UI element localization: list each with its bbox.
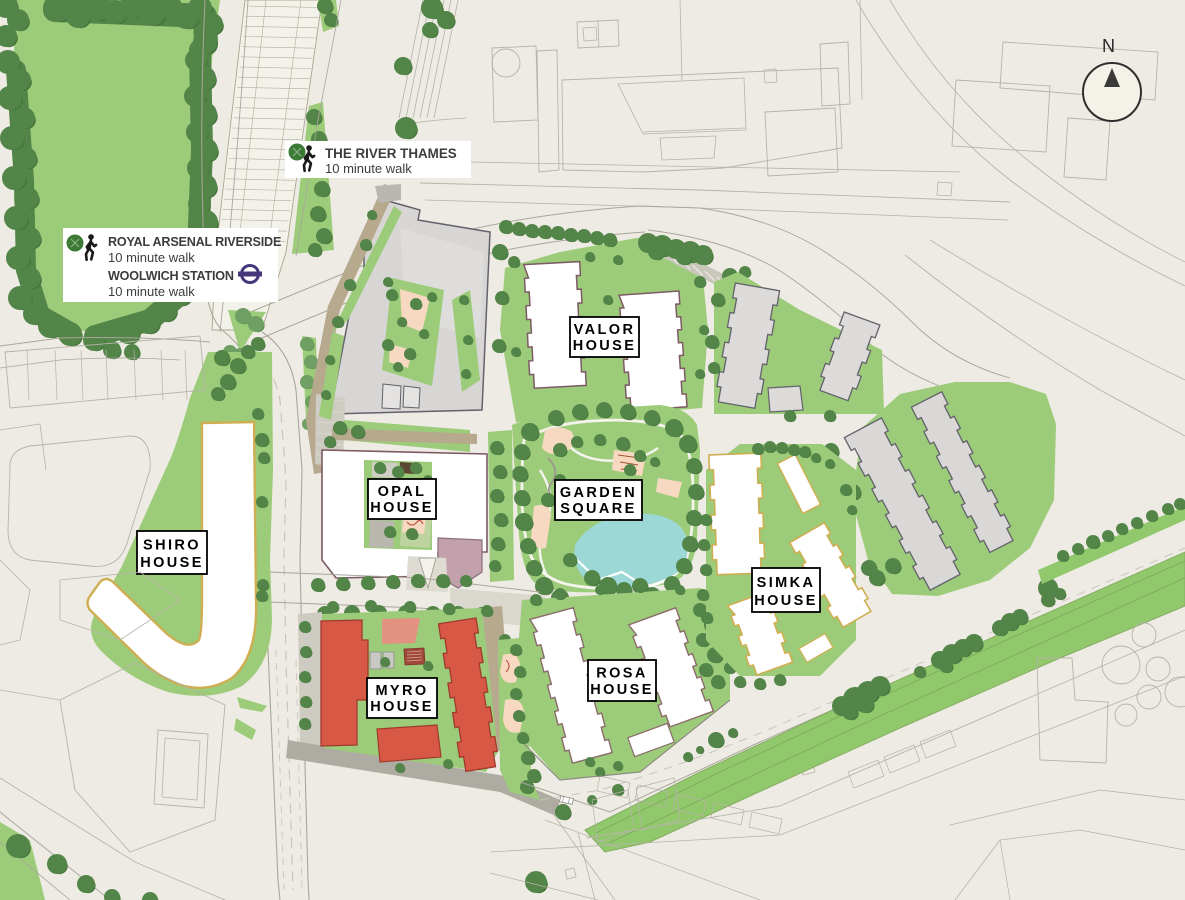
svg-text:N: N bbox=[1102, 36, 1115, 56]
svg-text:WOOLWICH STATION: WOOLWICH STATION bbox=[108, 269, 234, 283]
svg-text:ROSA: ROSA bbox=[596, 666, 648, 682]
svg-text:SIMKA: SIMKA bbox=[757, 575, 816, 591]
svg-text:ROYAL ARSENAL RIVERSIDE: ROYAL ARSENAL RIVERSIDE bbox=[108, 235, 281, 249]
svg-text:HOUSE: HOUSE bbox=[140, 555, 204, 571]
svg-text:10 minute walk: 10 minute walk bbox=[108, 250, 195, 265]
svg-text:HOUSE: HOUSE bbox=[370, 500, 434, 516]
svg-text:HOUSE: HOUSE bbox=[754, 593, 818, 609]
svg-text:OPAL: OPAL bbox=[378, 484, 427, 500]
svg-text:10 minute walk: 10 minute walk bbox=[325, 161, 412, 176]
svg-text:THE RIVER THAMES: THE RIVER THAMES bbox=[325, 146, 457, 161]
svg-text:MYRO: MYRO bbox=[375, 683, 428, 699]
svg-text:HOUSE: HOUSE bbox=[573, 338, 637, 354]
svg-text:HOUSE: HOUSE bbox=[590, 682, 654, 698]
svg-text:10 minute walk: 10 minute walk bbox=[108, 284, 195, 299]
svg-text:VALOR: VALOR bbox=[574, 322, 636, 338]
svg-text:SQUARE: SQUARE bbox=[560, 501, 636, 517]
svg-text:SHIRO: SHIRO bbox=[143, 538, 201, 554]
svg-text:HOUSE: HOUSE bbox=[370, 699, 434, 715]
svg-text:GARDEN: GARDEN bbox=[560, 485, 637, 501]
